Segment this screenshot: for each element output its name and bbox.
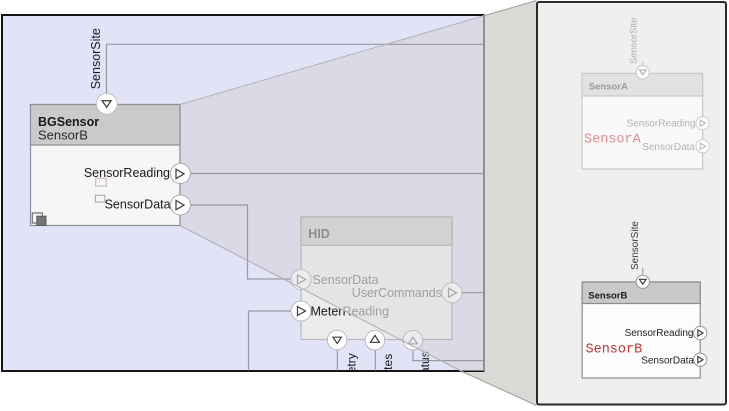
svg-text:SensorA: SensorA — [584, 133, 642, 148]
svg-text:SensorB: SensorB — [588, 290, 627, 301]
svg-text:SensorB: SensorB — [38, 127, 88, 142]
svg-text:SensorReading: SensorReading — [627, 119, 696, 130]
svg-text:SensorSite: SensorSite — [629, 18, 640, 64]
svg-text:SensorData: SensorData — [105, 198, 171, 212]
svg-text:SensorB: SensorB — [586, 342, 643, 357]
svg-text:SensorReading: SensorReading — [625, 328, 694, 339]
svg-text:SensorData: SensorData — [641, 356, 694, 367]
svg-text:SensorA: SensorA — [589, 82, 628, 93]
svg-text:SensorSite: SensorSite — [630, 221, 641, 270]
svg-text:SensorData: SensorData — [642, 142, 695, 153]
svg-text:SensorSite: SensorSite — [89, 28, 103, 89]
